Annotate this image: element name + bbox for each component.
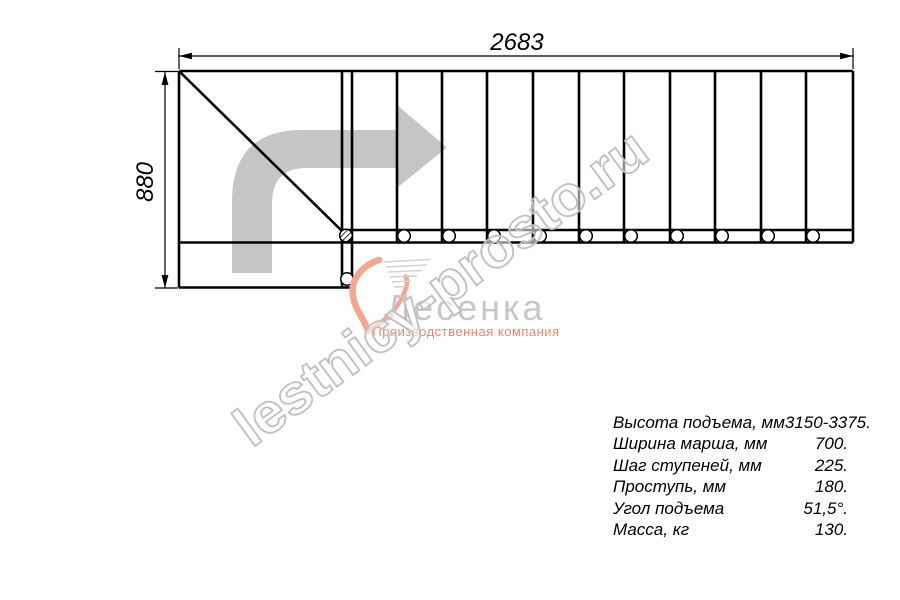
width-dimension: 2683 bbox=[179, 29, 853, 69]
spec-value: 3150-3375. bbox=[785, 412, 871, 433]
spec-label: Масса, кг bbox=[613, 519, 689, 540]
spec-label: Проступь, мм bbox=[613, 476, 726, 497]
spec-row: Ширина марша, мм 700. bbox=[613, 433, 848, 454]
spec-value: 51,5°. bbox=[803, 498, 848, 519]
dim-arrow-up bbox=[162, 72, 169, 85]
spec-label: Ширина марша, мм bbox=[613, 433, 767, 454]
spec-value: 130. bbox=[815, 519, 848, 540]
spec-value: 180. bbox=[815, 476, 848, 497]
specs-table: Высота подъема, мм 3150-3375. Ширина мар… bbox=[613, 412, 848, 540]
spec-row: Шаг ступеней, мм 225. bbox=[613, 455, 848, 476]
height-dimension: 880 bbox=[132, 72, 178, 289]
travel-direction-arrow-icon bbox=[232, 106, 447, 273]
drawing-canvas: 2683 880 bbox=[0, 0, 900, 600]
spec-label: Высота подъема, мм bbox=[613, 412, 785, 433]
hole-hatched bbox=[340, 229, 353, 242]
spec-row: Масса, кг 130. bbox=[613, 519, 848, 540]
spec-label: Угол подъема bbox=[613, 498, 724, 519]
spec-row: Проступь, мм 180. bbox=[613, 476, 848, 497]
dim-arrow-left bbox=[179, 53, 192, 60]
width-dimension-label: 2683 bbox=[489, 29, 544, 56]
height-dimension-label: 880 bbox=[132, 161, 159, 202]
spec-row: Высота подъема, мм 3150-3375. bbox=[613, 412, 848, 433]
spec-value: 700. bbox=[815, 433, 848, 454]
spec-value: 225. bbox=[815, 455, 848, 476]
dim-arrow-right bbox=[840, 53, 853, 60]
spec-row: Угол подъема 51,5°. bbox=[613, 498, 848, 519]
spec-label: Шаг ступеней, мм bbox=[613, 455, 762, 476]
dim-arrow-down bbox=[162, 275, 169, 288]
